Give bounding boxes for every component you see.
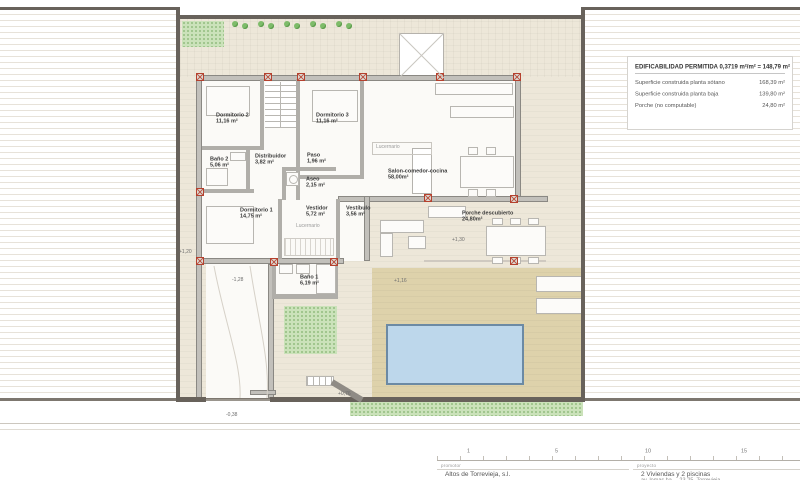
wall [260,79,264,150]
room-label-bano1: Baño 1 6,19 m² [300,274,319,286]
level-marker: +1,20 [179,249,192,255]
wall [250,390,276,395]
toilet [296,264,310,274]
floor-plan-sheet: Dormitorio 2 11,16 m² Dormitorio 3 11,16… [0,0,800,480]
level-marker: -0,38 [226,412,237,418]
pool [386,324,524,385]
room-label-bano2: Baño 2 5,06 m² [210,156,229,168]
column-marker [297,73,305,81]
boundary-wall [583,7,800,10]
planter-top-left [182,21,224,47]
plant-icon [268,23,274,29]
exterior-steps [306,376,334,386]
wall [278,199,282,259]
plant-icon [294,23,300,29]
boundary-wall [176,7,180,401]
plant-icon [310,21,316,27]
info-row: Superficie construida planta sótano 168,… [635,80,785,86]
chair [492,257,503,264]
wall [272,294,338,299]
plant-icon [242,23,248,29]
level-marker: +1,16 [394,278,407,284]
street-line [0,429,800,430]
outdoor-sofa [380,220,424,233]
column-marker [436,73,444,81]
terrace-strip [180,17,583,77]
level-marker: -1,28 [232,277,243,283]
scale-tick-label: 10 [645,448,651,454]
column-marker [359,73,367,81]
bathtub [316,264,336,294]
column-marker [264,73,272,81]
plant-icon [284,21,290,27]
plant-icon [346,23,352,29]
boundary-wall [176,15,585,19]
info-row: Superficie construida planta baja 139,80… [635,91,785,97]
room-label-paso: Paso 1,96 m² [307,152,326,164]
info-box-title: EDIFICABILIDAD PERMITIDA 0,3719 m²/m² = … [635,63,785,74]
chair [468,189,478,197]
porch-bench [428,206,466,218]
sink [279,264,293,274]
wall [202,146,264,150]
street-line [0,423,800,424]
promoter-name: Altos de Torrevieja, s.l. [445,470,510,478]
driveway [206,264,270,398]
room-label-salon: Salon-comedor-cocina 58,00m² [388,168,447,180]
wall [196,264,202,398]
coffee-table [408,236,426,249]
dining-table [460,156,514,188]
outdoor-sofa [380,233,393,257]
room-label-dormitorio3: Dormitorio 3 11,16 m² [316,112,349,124]
boundary-wall [270,397,585,402]
boundary-wall [581,7,585,401]
wall [515,75,521,202]
wardrobe-closet [284,238,334,256]
column-marker [270,258,278,266]
boundary-wall [176,397,206,402]
sun-lounger [536,298,582,314]
column-marker [513,73,521,81]
column-marker [196,73,204,81]
wall [360,79,364,179]
promoter-label: promotor [441,463,461,468]
plant-icon [258,21,264,27]
column-marker [510,257,518,265]
sink [230,152,246,161]
scale-tick-label: 15 [741,448,747,454]
washer-icon [286,172,299,186]
lucernario-label: Lucernario [376,144,400,150]
plant-icon [336,21,342,27]
grass-strip [350,402,583,416]
plant-icon [320,23,326,29]
wall [336,199,340,259]
skylight-square [399,33,444,78]
sun-lounger [536,276,582,292]
porch-table [486,226,546,256]
wall [246,146,250,193]
chair [486,189,496,197]
project-label: proyecto [637,463,656,468]
kitchen-counter [435,83,513,95]
staircase-rail [280,82,281,128]
wall [282,167,336,171]
level-marker: +0,76 [338,391,351,397]
terrain-hatch-left [0,10,176,399]
room-label-vestibulo: Vestíbulo 3,56 m² [346,205,370,217]
room-label-dormitorio1: Dormitorio 1 14,75 m² [240,207,273,219]
chair [486,147,496,155]
column-marker [196,188,204,196]
room-label-aseo: Aseo 2,15 m² [306,176,325,188]
patio-lawn [284,306,337,354]
kitchen-island [450,106,514,118]
buildability-info-box: EDIFICABILIDAD PERMITIDA 0,3719 m²/m² = … [627,56,793,130]
driveway-gate-line [206,399,270,401]
chair [528,218,539,225]
room-label-distribuidor: Distribuidor 3,82 m² [255,153,286,165]
room-label-vestidor: Vestidor 5,72 m² [306,205,328,217]
boundary-wall [0,7,176,10]
column-marker [330,258,338,266]
room-label-porche: Porche descubierto 24,80m² [462,210,513,222]
level-marker: +1,30 [452,237,465,243]
lucernario-label: Lucernario [296,223,320,229]
plant-icon [232,21,238,27]
chair [528,257,539,264]
info-row: Porche (no computable) 24,80 m² [635,103,785,109]
room-label-dormitorio2: Dormitorio 2 11,16 m² [216,112,249,124]
chair [468,147,478,155]
shower [206,168,228,186]
scale-tick-label: 5 [555,448,558,454]
wall [196,75,202,265]
column-marker [424,194,432,202]
scale-bar-line [437,460,800,461]
scale-tick-label: 1 [467,448,470,454]
column-marker [510,195,518,203]
column-marker [196,257,204,265]
